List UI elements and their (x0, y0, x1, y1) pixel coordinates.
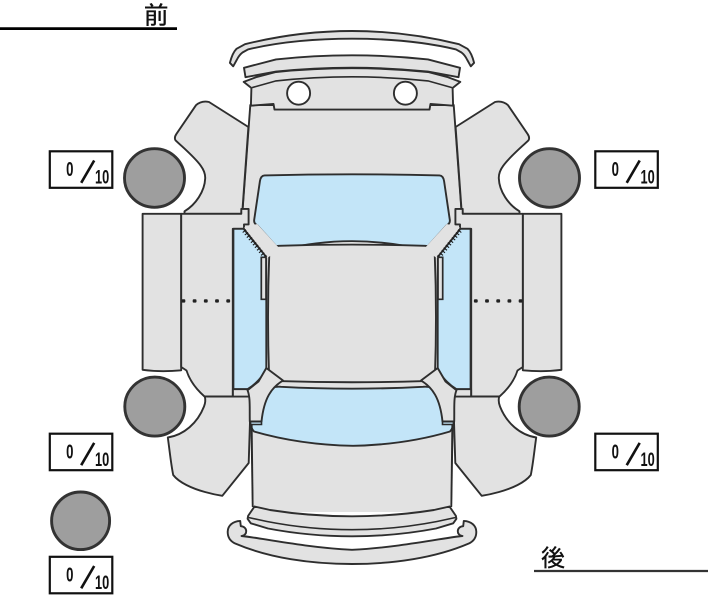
svg-text:10: 10 (641, 449, 655, 471)
svg-text:10: 10 (95, 167, 109, 189)
svg-text:0: 0 (612, 159, 619, 181)
svg-text:10: 10 (641, 167, 655, 189)
svg-text:0: 0 (66, 159, 73, 181)
svg-text:0: 0 (66, 442, 73, 464)
svg-text:10: 10 (95, 572, 109, 594)
svg-text:10: 10 (95, 449, 109, 471)
svg-text:0: 0 (66, 565, 73, 587)
svg-text:0: 0 (612, 442, 619, 464)
